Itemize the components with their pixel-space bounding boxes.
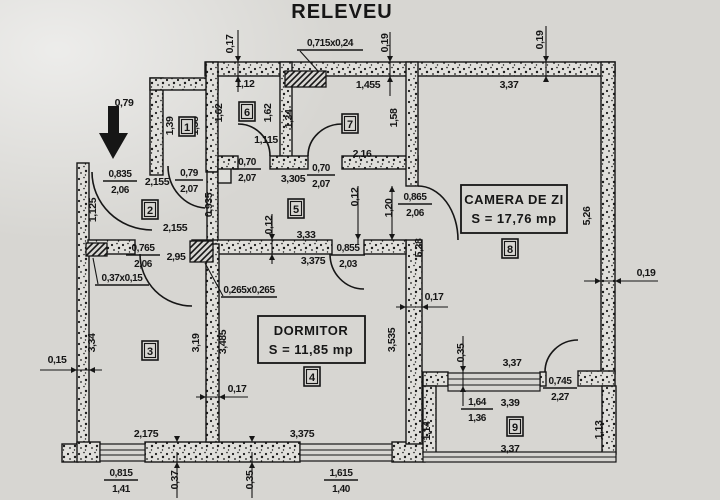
fraction-num: 0,79 — [180, 168, 199, 179]
room-name: DORMITOR — [274, 323, 349, 338]
window-camera — [448, 373, 540, 391]
window-room3 — [100, 444, 145, 461]
window-size-label: 0,815 1,41 — [104, 468, 138, 495]
dim-label: 1,58 — [388, 108, 400, 127]
dim-label: 3,535 — [386, 327, 398, 352]
wall-room1-left — [150, 78, 163, 175]
dim-label: 2,16 — [353, 148, 372, 160]
room-number-1: 1 — [179, 117, 195, 136]
dim-label: 2,175 — [134, 428, 159, 440]
dim-label: 3,33 — [297, 229, 316, 241]
fraction-den: 1,40 — [332, 484, 351, 495]
fraction-den: 2,06 — [134, 259, 153, 270]
dim-label: 5,28 — [413, 238, 425, 257]
dim-label: 3,39 — [501, 397, 520, 409]
dim-label: 3,37 — [500, 79, 519, 91]
fraction-num: 0,835 — [108, 169, 132, 180]
floor-plan-drawing: RELEVEU 0,79 1,12 1,455 3,37 1,115 3,305… — [0, 0, 720, 500]
room-number-3: 3 — [142, 341, 158, 360]
fraction-den: 2,07 — [180, 184, 199, 195]
room-number-text: 8 — [507, 244, 513, 256]
room-area: S = 17,76 mp — [471, 211, 556, 226]
dim-label: 5,26 — [581, 206, 593, 225]
dim-label: 1,13 — [593, 420, 605, 439]
dim-label: 0,12 — [349, 187, 361, 206]
wall-hall-camera — [406, 62, 418, 186]
door-size-label: 0,70 2,07 — [233, 157, 261, 184]
wall-dormitor-right — [406, 240, 422, 444]
room-number-2: 2 — [142, 200, 158, 219]
room-label-dormitor: DORMITOR S = 11,85 mp — [258, 316, 365, 363]
vent-left — [86, 243, 107, 256]
dim-label: 3,34 — [86, 333, 98, 352]
dim-label: 3,37 — [501, 443, 520, 455]
door-room7-arc — [308, 124, 342, 156]
window-dormitor — [300, 444, 392, 461]
dim-label: 1,62 — [213, 103, 225, 122]
fraction-den: 2,06 — [406, 208, 425, 219]
fraction-den: 1,36 — [468, 413, 487, 424]
dim-label: 0,19 — [534, 30, 546, 49]
dim-label: 0,935 — [203, 192, 215, 217]
room-number-text: 6 — [244, 107, 250, 119]
dim-label: 0,79 — [115, 97, 134, 109]
dim-label: 0,17 — [228, 383, 247, 395]
room-number-text: 5 — [293, 204, 299, 216]
door-size-label: 0,70 2,07 — [307, 163, 335, 190]
room-number-text: 7 — [347, 119, 353, 131]
room-number-5: 5 — [288, 199, 304, 218]
room-number-4: 4 — [304, 367, 320, 386]
wall-bottom-seg1 — [77, 442, 100, 462]
dim-label: 3,37 — [503, 357, 522, 369]
room-label-camera-de-zi: CAMERA DE ZI S = 17,76 mp — [461, 185, 567, 233]
dim-label: 3,19 — [190, 333, 202, 352]
room-number-text: 4 — [309, 372, 316, 384]
fraction-den: 2,27 — [551, 392, 570, 403]
dim-label: 1,14 — [421, 421, 433, 440]
wall-camera-bottom-pier — [540, 372, 546, 386]
room-number-text: 1 — [184, 122, 190, 134]
room-number-6: 6 — [239, 102, 255, 121]
door-size-label: 0,79 2,07 — [175, 168, 203, 195]
fraction-den: 1,41 — [112, 484, 131, 495]
window-size-label: 1,615 1,40 — [324, 468, 358, 495]
wall-under-rooms-seg2 — [270, 156, 308, 169]
wall-mid-seg3 — [364, 240, 406, 254]
page-title: RELEVEU — [291, 1, 392, 23]
dim-label: 1,34 — [283, 109, 295, 128]
wall-right — [601, 62, 615, 374]
room-number-text: 2 — [147, 205, 153, 217]
fraction-num: 0,765 — [131, 243, 155, 254]
dim-label: 1,455 — [356, 79, 381, 91]
fraction-num: 0,70 — [238, 157, 257, 168]
vent-top — [285, 71, 326, 87]
dim-label: 0,19 — [637, 267, 656, 279]
door-size-label: 0,835 2,06 — [103, 169, 137, 196]
dim-label: 0,17 — [425, 291, 444, 303]
dim-label: 3,485 — [217, 329, 229, 354]
entrance-arrow-icon — [99, 106, 128, 159]
room-name: CAMERA DE ZI — [464, 192, 563, 207]
dim-label: 0,35 — [455, 343, 467, 362]
door-size-label: 0,765 2,06 — [126, 243, 160, 270]
fraction-den: 2,07 — [312, 179, 331, 190]
dim-label: 3,375 — [301, 255, 326, 267]
dim-label: 2,155 — [163, 222, 188, 234]
fraction-den: 2,07 — [238, 173, 257, 184]
window-size-label: 1,64 1,36 — [461, 397, 493, 424]
dim-label: 1,20 — [383, 198, 395, 217]
fraction-num: 0,815 — [109, 468, 133, 479]
door-size-label: 0,745 2,27 — [543, 376, 577, 403]
dim-label: 1,125 — [87, 197, 99, 222]
fraction-num: 1,615 — [329, 468, 353, 479]
room-number-text: 9 — [512, 422, 518, 434]
vent-mid — [190, 241, 213, 262]
dim-label: 2,155 — [145, 176, 170, 188]
dim-label: 0,17 — [224, 34, 236, 53]
fraction-num: 0,70 — [312, 163, 331, 174]
dim-label: 0,35 — [244, 470, 256, 489]
fraction-num: 0,855 — [336, 243, 360, 254]
door-balcony-arc — [545, 340, 578, 372]
floor-plan-page: RELEVEU 0,79 1,12 1,455 3,37 1,115 3,305… — [0, 0, 720, 500]
vent-label: 0,265x0,265 — [223, 285, 275, 296]
wall-bottom-left-step — [62, 444, 78, 462]
fraction-den: 2,03 — [339, 259, 358, 270]
fraction-num: 0,865 — [403, 192, 427, 203]
vent-label: 0,37x0,15 — [102, 273, 144, 284]
wall-right-step — [578, 371, 615, 386]
fraction-num: 0,745 — [548, 376, 572, 387]
dim-label: 0,12 — [263, 215, 275, 234]
dim-label: 1,115 — [254, 134, 278, 146]
dim-label: 1,62 — [262, 103, 274, 122]
room-number-7: 7 — [342, 114, 358, 133]
wall-balcony-right — [602, 386, 616, 454]
wall-camera-bottom-seg1 — [423, 372, 448, 386]
wall-under-rooms-seg1 — [218, 156, 238, 169]
dim-label: 2,95 — [167, 251, 186, 263]
fraction-num: 1,64 — [468, 397, 487, 408]
dim-label: 1,39 — [164, 116, 176, 135]
room-number-text: 3 — [147, 346, 153, 358]
dim-label: 0,37 — [169, 470, 181, 489]
room-number-8: 8 — [502, 239, 518, 258]
dim-label: 0,19 — [379, 33, 391, 52]
dim-label: 1,12 — [236, 78, 255, 90]
fraction-den: 2,06 — [111, 185, 130, 196]
dim-label: 3,305 — [281, 173, 306, 185]
dim-label: 3,375 — [290, 428, 315, 440]
room-area: S = 11,85 mp — [269, 342, 353, 357]
wall-bottom-seg3 — [392, 442, 425, 462]
room-number-9: 9 — [507, 417, 523, 436]
vent-label: 0,715x0,24 — [307, 38, 354, 49]
wall-balcony-left — [423, 386, 436, 454]
door-size-label: 0,865 2,06 — [398, 192, 432, 219]
dim-label: 0,15 — [48, 354, 67, 366]
door-size-label: 0,855 2,03 — [331, 243, 365, 270]
wall-nib — [218, 168, 231, 183]
wall-bottom-seg2 — [145, 442, 300, 462]
